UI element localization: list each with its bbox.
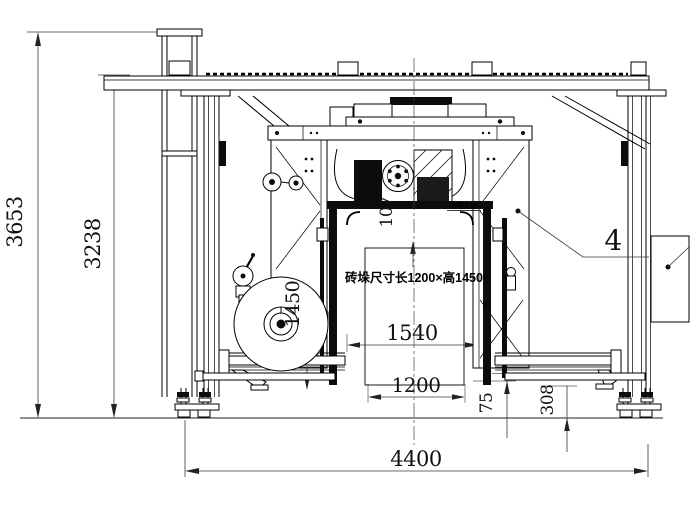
- machine-drawing: 3653 3238 4400 1540 1200 1450 107 75 308…: [0, 0, 690, 523]
- trolley-wheel: [498, 119, 502, 123]
- beam-height-label: 3238: [81, 218, 105, 269]
- overall-width-label: 4400: [390, 447, 441, 471]
- gate-width-label: 1540: [386, 321, 437, 345]
- track-tab: [493, 228, 503, 241]
- right-truss-column: [473, 140, 529, 368]
- overall-height-label: 3653: [3, 196, 27, 247]
- stack-size-note: 砖垛尺寸长1200×高1450: [345, 270, 483, 285]
- brick-stack: [365, 248, 464, 385]
- lock-catch: [507, 276, 516, 290]
- technical-drawing-canvas: 3653 3238 4400 1540 1200 1450 107 75 308…: [0, 0, 690, 523]
- beam-stop-block: [472, 62, 492, 75]
- trolley-wheel: [358, 119, 362, 123]
- motor-flange: [383, 161, 414, 192]
- beam-stop-block: [631, 62, 646, 75]
- platform-height-label: 308: [538, 385, 558, 416]
- dimension-head-clearance: [410, 241, 416, 267]
- part-callout-4: [518, 211, 649, 257]
- platform-offset-label: 75: [477, 393, 497, 414]
- control-box: [651, 236, 689, 322]
- beam-stop-block: [338, 62, 358, 75]
- part-number-label: 4: [604, 224, 621, 257]
- right-platform: [495, 350, 645, 389]
- stack-height-label: 1450: [282, 281, 304, 327]
- head-clearance-label: 107: [377, 197, 397, 228]
- strap-track: [317, 201, 521, 385]
- direction-note: 穿带方向: [447, 201, 481, 211]
- svg-text:穿带方向: 穿带方向: [451, 201, 478, 210]
- track-tab: [317, 228, 328, 241]
- right-foot: [617, 388, 661, 417]
- band-reel: [234, 277, 328, 371]
- lock-catch: [507, 268, 516, 277]
- stack-width-label: 1200: [392, 373, 441, 397]
- feed-unit: [414, 150, 452, 204]
